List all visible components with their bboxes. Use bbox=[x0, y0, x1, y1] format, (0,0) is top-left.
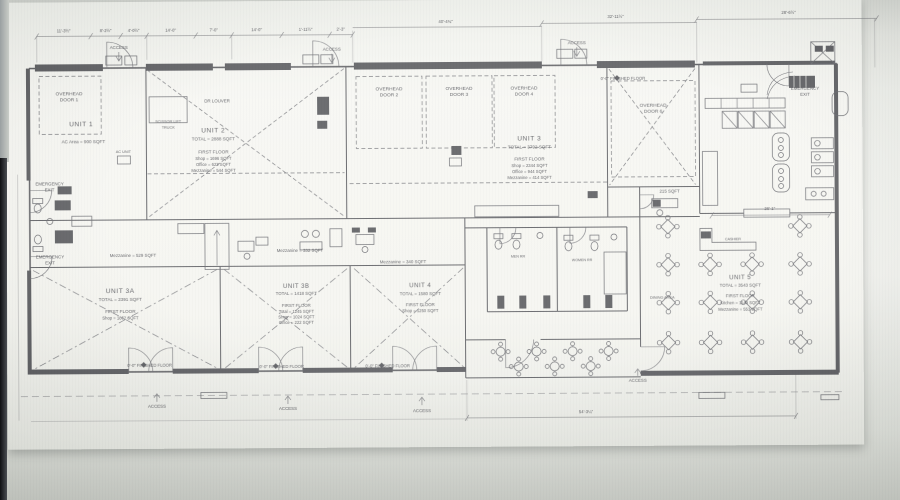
women-rr-label: WOMEN RR bbox=[572, 258, 593, 262]
unit3a-name: UNIT 3A bbox=[106, 288, 135, 295]
unit3-total: TOTAL = 3792 SQFT bbox=[508, 144, 551, 149]
dim-top-0: 11'-3½" bbox=[57, 28, 71, 33]
overhead-door-2-l1: OVERHEAD bbox=[376, 86, 403, 92]
finished-floor-4: 0'-0" FINISHED FLOOR bbox=[601, 76, 646, 81]
unit5-name: UNIT 5 bbox=[729, 275, 751, 281]
dim-top-5: 14'-0" bbox=[251, 27, 262, 32]
unit3-floor: FIRST FLOOR bbox=[514, 156, 545, 161]
dim-top-6: 1'-11½" bbox=[299, 27, 313, 32]
emergency-exit-left1-l2: EXIT bbox=[45, 187, 55, 192]
overhead-door-4-l1: OVERHEAD bbox=[511, 85, 538, 91]
unit3b-name: UNIT 3B bbox=[283, 284, 309, 290]
emergency-exit-left2-l1: EMERGENCY bbox=[36, 254, 64, 259]
unit4-line-0: Shop = 1250 SQFT bbox=[402, 308, 439, 313]
unit3b-line-1: Shop = 1024 SQFT bbox=[278, 314, 315, 319]
overhead-door-3-l1: OVERHEAD bbox=[446, 86, 473, 92]
overhead-door-6-l1: OVERHEAD bbox=[640, 103, 667, 109]
interior-walls bbox=[29, 64, 839, 373]
finished-floor-1: 0'-0" FINISHED FLOOR bbox=[127, 363, 172, 368]
stairs bbox=[177, 151, 790, 297]
unit3b-line-0: Total = 1245 SQFT bbox=[279, 309, 315, 314]
unit2-floor: FIRST FLOOR bbox=[198, 149, 229, 154]
access-label-bottom-3: ACCESS bbox=[413, 408, 431, 413]
access-label-top-1: ACCESS bbox=[110, 45, 128, 50]
photo-of-floor-plan: UNIT 1 AC Area = 900 SQFT UNIT 2 TOTAL =… bbox=[0, 0, 900, 500]
finished-floor-2: 0'-0" FINISHED FLOOR bbox=[259, 364, 304, 369]
unit5-total: TOTAL = 3543 SQFT bbox=[720, 283, 762, 288]
dim-kitchen: 26'-1" bbox=[764, 206, 775, 211]
office-furniture bbox=[57, 49, 678, 261]
patio-tables bbox=[491, 341, 618, 376]
dining-area-label: DINING AREA bbox=[650, 296, 675, 300]
exterior-walls bbox=[29, 64, 839, 381]
finished-floor-3: 0'-0" FINISHED FLOOR bbox=[365, 363, 410, 368]
dim-top2-1: 32'-11½" bbox=[607, 14, 624, 19]
overhead-door-6-l2: DOOR 6 bbox=[644, 109, 663, 115]
men-rr-label: MEN RR bbox=[511, 255, 526, 259]
unit2-line-2: Mezzanine = 544 SQFT bbox=[191, 168, 236, 173]
drawing-sheet: UNIT 1 AC Area = 900 SQFT UNIT 2 TOTAL =… bbox=[0, 0, 900, 500]
unit4-name: UNIT 4 bbox=[409, 283, 431, 289]
dim-top-3: 14'-0" bbox=[165, 28, 176, 33]
photo-left-edge-top bbox=[0, 0, 9, 162]
unit4-total: TOTAL = 1580 SQFT bbox=[400, 291, 442, 296]
unit2-line-1: Office = 623 SQFT bbox=[196, 162, 231, 167]
unit3a-total: TOTAL = 2391 SQFT bbox=[99, 297, 142, 302]
unit4-mezzanine: Mezzanine = 340 SQFT bbox=[380, 259, 427, 264]
overhead-door-1-l2: DOOR 1 bbox=[60, 97, 79, 103]
overhead-door-3-l2: DOOR 3 bbox=[450, 92, 469, 98]
unit3a-floor: FIRST FLOOR bbox=[105, 309, 136, 314]
emergency-exit-left1-l1: EMERGENCY bbox=[35, 181, 63, 186]
unit3-line-2: Mezzanine = 414 SQFT bbox=[507, 175, 552, 180]
dim-top-7: 2'-3" bbox=[336, 27, 345, 32]
room-215-label: 215 SQFT bbox=[659, 189, 680, 194]
unit4-floor: FIRST FLOOR bbox=[406, 302, 435, 307]
overhead-door-outlines bbox=[39, 73, 696, 181]
unit1-name: UNIT 1 bbox=[69, 121, 93, 128]
photo-left-edge-shadow bbox=[0, 158, 7, 500]
access-label-bottom-1: ACCESS bbox=[148, 404, 166, 409]
unit2-line-0: Shop = 1696 SQFT bbox=[195, 156, 232, 161]
dr-louver-label: DR LOUVER bbox=[204, 98, 230, 103]
unit3-line-1: Office = 944 SQFT bbox=[512, 169, 547, 174]
dim-top-1: 8'-2½" bbox=[100, 28, 112, 33]
access-label-top-2: ACCESS bbox=[323, 47, 341, 52]
door-swings bbox=[29, 38, 850, 375]
unit3b-total: TOTAL = 1418 SQFT bbox=[276, 291, 318, 296]
unit2-name: UNIT 2 bbox=[201, 127, 225, 134]
finished-floor-markers bbox=[139, 75, 621, 370]
unit3a-mezzanine: Mezzanine = 529 SQFT bbox=[110, 253, 157, 258]
floor-plan-drawing: UNIT 1 AC Area = 900 SQFT UNIT 2 TOTAL =… bbox=[0, 0, 900, 500]
overhead-door-4-l2: DOOR 4 bbox=[515, 91, 534, 97]
unit1-area: AC Area = 900 SQFT bbox=[62, 139, 106, 144]
unit3b-floor: FIRST FLOOR bbox=[282, 303, 311, 308]
access-label-patio: ACCESS bbox=[629, 378, 647, 383]
emergency-exit-topright-l2: EXIT bbox=[800, 92, 810, 97]
access-label-top-3: ACCESS bbox=[568, 40, 586, 45]
unit5-line-0: Kitchen = 1149 SQFT bbox=[720, 300, 761, 305]
unit2-total: TOTAL = 2888 SQFT bbox=[192, 136, 235, 141]
emergency-exit-left2-l2: EXIT bbox=[45, 260, 55, 265]
emergency-exit-topright-l1: EMERGENCY bbox=[791, 86, 819, 91]
cashier-label: CASHIER bbox=[725, 237, 741, 241]
overhead-door-1-l1: OVERHEAD bbox=[56, 91, 83, 97]
scissor-lift-l2: TRUCK bbox=[162, 126, 176, 130]
overhead-door-2-l2: DOOR 2 bbox=[380, 92, 399, 98]
unit3-name: UNIT 3 bbox=[517, 135, 541, 142]
access-label-bottom-2: ACCESS bbox=[279, 406, 297, 411]
kitchen-equipment bbox=[705, 46, 835, 201]
dim-top-2: 4'-0½" bbox=[128, 28, 140, 33]
dim-top2-2: 28'-6½" bbox=[781, 10, 796, 15]
unit5-floor: FIRST FLOOR bbox=[726, 293, 755, 298]
dim-top-4: 7'-0" bbox=[209, 27, 218, 32]
dim-top2-0: 40'-4¾" bbox=[439, 19, 454, 24]
unit5-line-1: Mezzanine = 553 SQFT bbox=[718, 307, 763, 312]
unit3-line-0: Shop = 2344 SQFT bbox=[511, 163, 548, 168]
unit3a-line-0: Shop = 1862 SQFT bbox=[102, 315, 139, 320]
unit3b-line-2: Office = 222 SQFT bbox=[279, 320, 314, 325]
unit3b-mezzanine: Mezzanine = 332 SQFT bbox=[277, 248, 324, 253]
ac-unit-label: AC UNIT bbox=[116, 150, 132, 154]
dim-bottom: 54'-3¼" bbox=[579, 409, 594, 414]
scissor-lift-l1: SCISSOR LIFT bbox=[155, 120, 182, 124]
